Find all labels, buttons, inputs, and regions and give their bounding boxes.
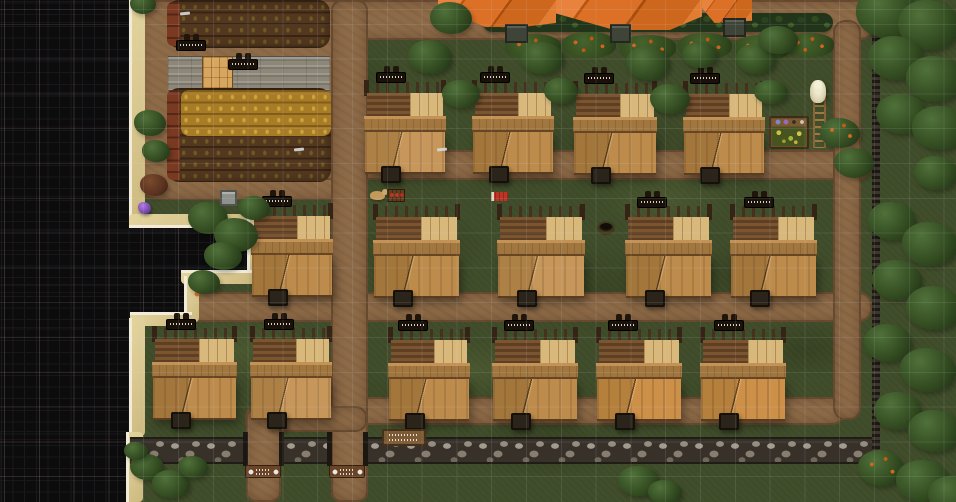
house-floor — [628, 217, 709, 240]
house-wall-top — [700, 363, 786, 379]
tree[interactable] — [754, 80, 788, 104]
house-door[interactable] — [171, 412, 191, 429]
house-sign[interactable] — [264, 313, 294, 330]
weapon-rack[interactable] — [387, 189, 405, 202]
tree[interactable] — [650, 84, 690, 114]
fog-of-war — [0, 0, 132, 222]
tree[interactable] — [188, 270, 220, 294]
tree[interactable] — [914, 156, 956, 190]
house-wall-top — [497, 240, 585, 256]
game-viewport[interactable] — [0, 0, 956, 502]
tree[interactable] — [544, 78, 578, 104]
fog-of-war — [0, 430, 129, 502]
house-wall-top — [250, 362, 332, 378]
fog-of-war — [0, 318, 132, 432]
house-floor — [495, 340, 575, 363]
tree[interactable] — [902, 222, 956, 266]
house-sign[interactable] — [398, 314, 428, 331]
house-wall-top — [573, 117, 657, 133]
house-wall-top — [625, 240, 712, 256]
house-sign[interactable] — [714, 314, 744, 331]
house-wall — [493, 379, 577, 421]
house[interactable] — [250, 328, 332, 429]
house-wall — [473, 132, 553, 174]
house-sign[interactable] — [584, 67, 614, 84]
house-wall-top — [683, 117, 765, 133]
tree[interactable] — [178, 456, 208, 478]
house-floor — [155, 339, 234, 362]
house[interactable] — [152, 328, 237, 429]
house[interactable] — [573, 83, 657, 184]
gate-post — [279, 432, 284, 466]
house-wall-top — [730, 240, 817, 256]
gate-sign[interactable] — [329, 465, 365, 478]
house-sign[interactable] — [480, 66, 510, 83]
house-floor — [254, 216, 330, 239]
house-door[interactable] — [381, 166, 401, 183]
house-floor — [599, 340, 679, 363]
house-wall — [626, 256, 711, 298]
house-wall — [701, 379, 785, 421]
tree[interactable] — [142, 140, 170, 162]
house-sign[interactable] — [637, 191, 667, 208]
tree[interactable] — [912, 106, 956, 150]
house-door[interactable] — [393, 290, 413, 307]
notice-board[interactable] — [382, 429, 426, 446]
burrow-hole[interactable] — [599, 223, 613, 233]
house-door[interactable] — [700, 167, 720, 184]
house-wall — [365, 132, 445, 174]
tree[interactable] — [906, 286, 956, 330]
tree[interactable] — [758, 26, 798, 54]
tree[interactable] — [134, 110, 166, 136]
house-floor — [391, 340, 467, 363]
house-floor — [376, 217, 457, 240]
house-wall — [731, 256, 816, 298]
house-door[interactable] — [615, 413, 635, 430]
planter-table[interactable] — [769, 116, 809, 149]
field-sign[interactable] — [176, 34, 206, 51]
house-floor — [500, 217, 582, 240]
house-wall-top — [388, 363, 470, 379]
chimney — [610, 24, 631, 43]
house-wall — [153, 378, 236, 420]
house-floor — [253, 339, 329, 362]
house-wall-top — [364, 116, 446, 132]
house[interactable] — [388, 329, 470, 430]
house[interactable] — [683, 83, 765, 184]
tree[interactable] — [238, 196, 270, 220]
house[interactable] — [492, 329, 578, 430]
house-door[interactable] — [645, 290, 665, 307]
house[interactable] — [700, 329, 786, 430]
gate-post — [327, 432, 332, 466]
tree[interactable] — [906, 56, 956, 102]
tree[interactable] — [626, 46, 670, 80]
house-door[interactable] — [517, 290, 537, 307]
stone-wall[interactable] — [366, 437, 877, 464]
dirt-path — [833, 20, 861, 420]
gate-post — [363, 432, 368, 466]
tree[interactable] — [820, 118, 860, 148]
amethyst-rock[interactable] — [138, 202, 151, 214]
house-sign[interactable] — [166, 313, 196, 330]
storage-crate[interactable] — [220, 190, 237, 206]
tree[interactable] — [648, 480, 682, 502]
house[interactable] — [625, 206, 712, 307]
road-sign[interactable] — [228, 53, 258, 70]
tree[interactable] — [834, 148, 874, 178]
red-banner[interactable] — [491, 192, 508, 201]
house[interactable] — [730, 206, 817, 307]
tree[interactable] — [900, 348, 956, 392]
house-door[interactable] — [511, 413, 531, 430]
tree[interactable] — [442, 80, 480, 108]
house-floor — [703, 340, 783, 363]
gate-post — [243, 432, 248, 466]
house-floor — [733, 217, 814, 240]
farm-crop — [181, 90, 331, 136]
tree[interactable] — [124, 442, 148, 460]
house-door[interactable] — [267, 412, 287, 429]
house-door[interactable] — [405, 413, 425, 430]
house-wall-top — [472, 116, 554, 132]
house-door[interactable] — [750, 290, 770, 307]
house-floor — [576, 94, 654, 117]
house-wall-top — [251, 239, 333, 255]
tree[interactable] — [520, 42, 564, 74]
house-wall-top — [152, 362, 237, 378]
tree[interactable] — [908, 410, 956, 452]
house-wall — [374, 256, 459, 298]
house-wall — [684, 133, 764, 175]
house[interactable] — [596, 329, 682, 430]
house[interactable] — [251, 205, 333, 306]
tree[interactable] — [430, 2, 472, 34]
house-floor — [475, 93, 551, 116]
house[interactable] — [472, 82, 554, 183]
house[interactable] — [373, 206, 460, 307]
house-door[interactable] — [591, 167, 611, 184]
gate-sign[interactable] — [245, 465, 281, 478]
house-wall — [389, 379, 469, 421]
house-sign[interactable] — [504, 314, 534, 331]
house-door[interactable] — [268, 289, 288, 306]
chimney — [505, 24, 528, 43]
house-sign[interactable] — [690, 67, 720, 84]
house-door[interactable] — [489, 166, 509, 183]
house-wall-top — [373, 240, 460, 256]
house-floor — [686, 94, 762, 117]
tree[interactable] — [408, 40, 452, 74]
house-sign[interactable] — [376, 66, 406, 83]
villager[interactable] — [810, 80, 826, 103]
chimney — [723, 18, 746, 37]
stone-wall[interactable] — [282, 437, 330, 464]
house-sign[interactable] — [608, 314, 638, 331]
house-floor — [367, 93, 443, 116]
tree[interactable] — [682, 42, 718, 68]
farm-crop — [167, 90, 180, 180]
tree[interactable] — [204, 242, 242, 270]
house-wall — [597, 379, 681, 421]
house-wall-top — [596, 363, 682, 379]
house[interactable] — [497, 206, 585, 307]
shoreline-sand — [129, 318, 145, 436]
house-wall — [574, 133, 656, 175]
house-wall-top — [492, 363, 578, 379]
house-wall — [251, 378, 331, 420]
house-sign[interactable] — [744, 191, 774, 208]
small-animal[interactable] — [370, 191, 385, 200]
tree[interactable] — [140, 174, 168, 196]
house-door[interactable] — [719, 413, 739, 430]
house-wall — [498, 256, 584, 298]
house[interactable] — [364, 82, 446, 183]
house-wall — [252, 255, 332, 297]
berry-bush[interactable] — [562, 32, 616, 58]
